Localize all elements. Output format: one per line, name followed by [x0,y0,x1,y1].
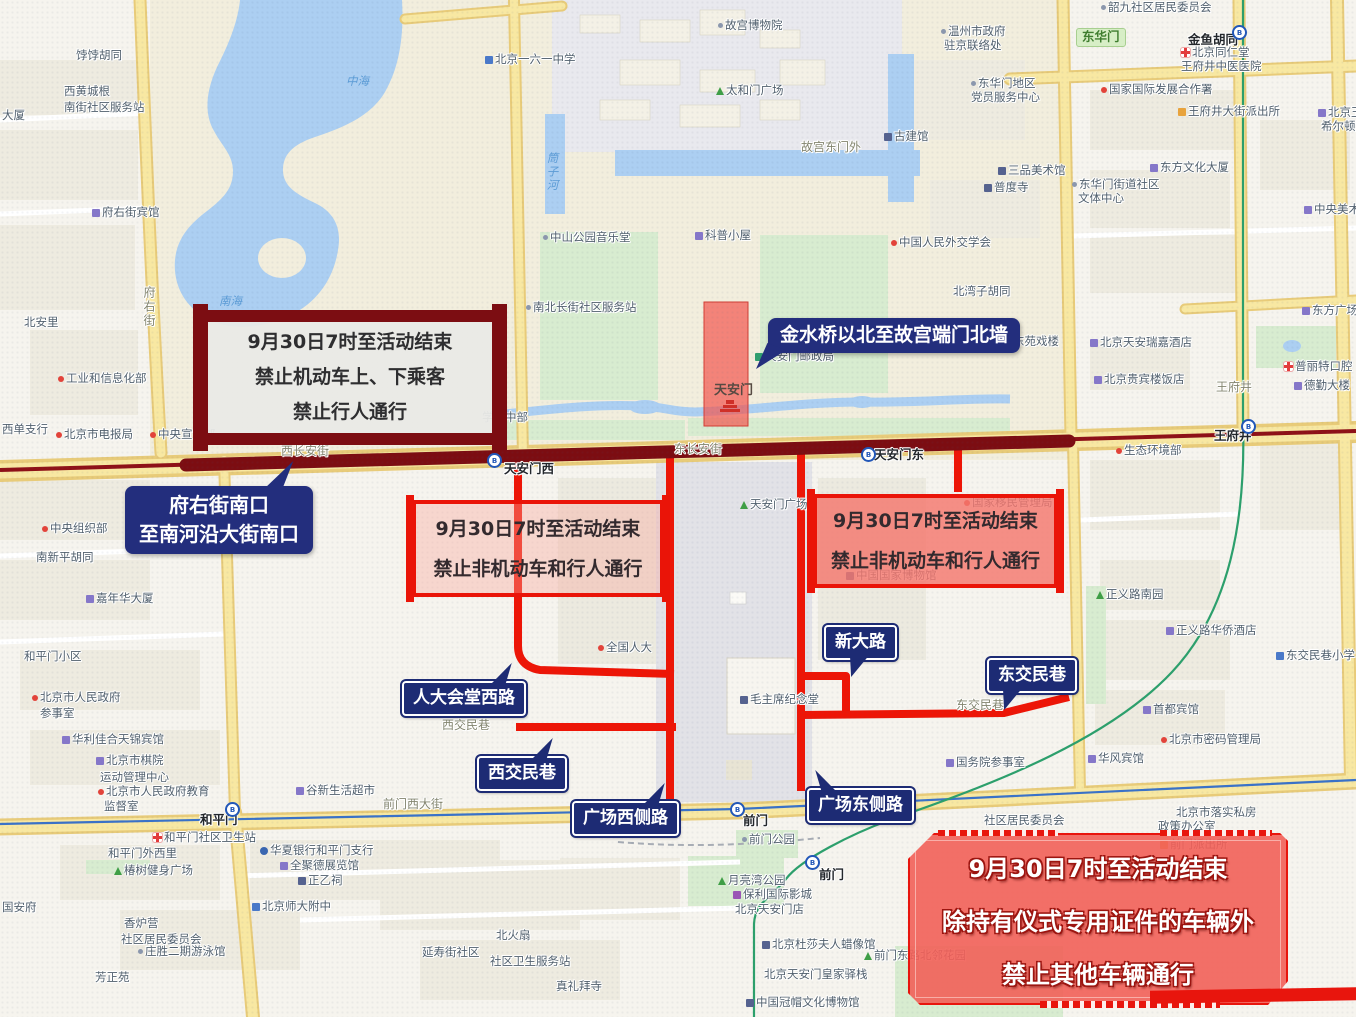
notice-line: 9月30日7时至活动结束 [817,501,1054,541]
road-callout-guangchang-xicelu: 广场西侧路 [572,801,679,836]
east-restriction-box: 9月30日7时至活动结束 禁止非机动车和行人通行 [813,494,1058,588]
road-callout-xijiaominxiang: 西交民巷 [477,756,567,791]
ceremony-restriction-box: 9月30日7时至活动结束 除持有仪式专用证件的车辆外 禁止其他车辆通行 [908,833,1288,1005]
fuyoujie-section-callout: 府右街南口 至南河沿大街南口 [125,486,313,554]
notice-line: 禁止行人通行 [207,395,493,430]
west-restriction-box: 9月30日7时至活动结束 禁止非机动车和行人通行 [412,500,664,597]
tiananmen-gate-icon [720,399,740,412]
road-callout-text: 新大路 [835,632,886,652]
tiananmen-square [656,462,812,802]
callout-line: 至南河沿大街南口 [139,520,299,549]
box-deco-stripe [1160,830,1272,836]
closure-notice-box: 9月30日7时至活动结束 禁止机动车上、下乘客 禁止行人通行 [200,315,500,440]
jinshuiqiao-section-callout: 金水桥以北至故宫端门北墙 [768,318,1020,353]
road-callout-text: 广场西侧路 [583,808,668,828]
map-canvas[interactable]: 饽饽胡同西黄城根南街社区服务站大厦府右街宾馆北安里工业和信息化部西单支行北京市电… [0,0,1356,1017]
notice-line: 9月30日7时至活动结束 [416,509,660,549]
road-callout-rendahuitang-xilu: 人大会堂西路 [402,681,526,716]
mausoleum [727,658,795,734]
road-callout-text: 西交民巷 [488,763,556,783]
callout-text: 金水桥以北至故宫端门北墙 [780,324,1008,346]
callout-line: 府右街南口 [139,491,299,520]
notice-line: 禁止机动车上、下乘客 [207,360,493,395]
road-callout-xindalu: 新大路 [824,625,897,660]
road-callout-text: 人大会堂西路 [413,688,515,708]
notice-line: 除持有仪式专用证件的车辆外 [910,896,1286,949]
road-callout-guangchang-dongcelu: 广场东侧路 [807,788,914,823]
notice-line: 禁止非机动车和行人通行 [817,541,1054,581]
box-frame-top [203,310,497,316]
road-callout-text: 广场东侧路 [818,795,903,815]
notice-line: 禁止非机动车和行人通行 [416,549,660,589]
road-callout-dongjiaominxiang: 东交民巷 [987,658,1077,693]
box-frame-bottom [203,439,497,445]
box-deco-stripe [938,830,1058,836]
notice-line: 9月30日7时至活动结束 [207,325,493,360]
road-callout-text: 东交民巷 [998,665,1066,685]
notice-line: 9月30日7时至活动结束 [910,843,1286,896]
